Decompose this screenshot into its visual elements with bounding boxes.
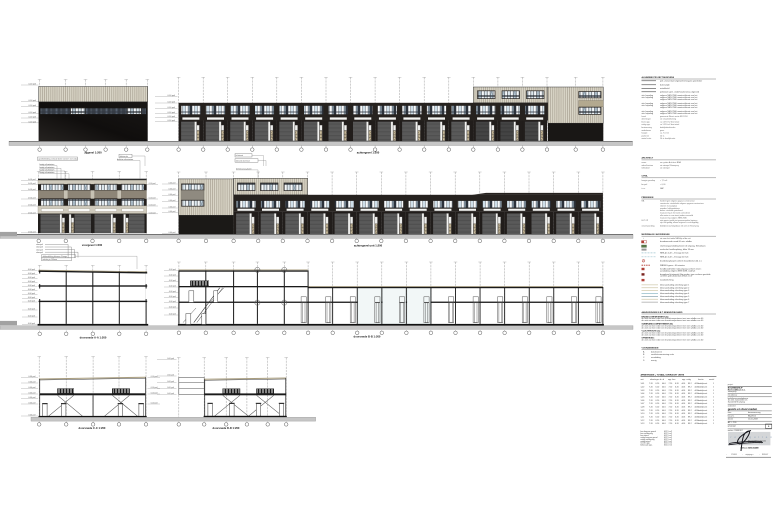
svg-text:0.00 peil: 0.00 peil: [167, 116, 175, 118]
svg-text:0.00 peil: 0.00 peil: [28, 105, 36, 107]
svg-text:0.00 peil: 0.00 peil: [169, 269, 176, 271]
svg-text:kleuraanduiding afwerking type: kleuraanduiding afwerking type 2: [660, 286, 690, 289]
svg-text:0.00 peil: 0.00 peil: [28, 293, 36, 295]
svg-text:Savelveld Stramproy: Savelveld Stramproy: [728, 401, 745, 404]
svg-text:0-PEIL: 0-PEIL: [642, 176, 649, 178]
svg-text:7.20: 7.20: [649, 407, 653, 409]
svg-text:0.00 peil: 0.00 peil: [169, 286, 176, 288]
svg-text:0.00 peil: 0.00 peil: [169, 291, 176, 293]
svg-text:bn-peil: bn-peil: [642, 184, 648, 186]
svg-text:0.00 peil: 0.00 peil: [149, 198, 156, 200]
svg-text:Stramproy: Stramproy: [728, 390, 737, 393]
svg-text:afmetingen b x d: afmetingen b x d: [650, 378, 664, 381]
svg-text:6.20: 6.20: [656, 407, 660, 409]
svg-text:vloerpeil: vloerpeil: [36, 251, 44, 254]
svg-text:aantal units: aantal units: [642, 137, 652, 140]
svg-text:0.00 peil: 0.00 peil: [169, 314, 176, 316]
svg-text:44.6: 44.6: [682, 420, 686, 422]
svg-text:WBDBO-grens - 60 minuten: WBDBO-grens - 60 minuten: [660, 264, 685, 267]
svg-text:612,5 m2: 612,5 m2: [664, 445, 672, 447]
svg-text:44.6: 44.6: [682, 390, 686, 392]
svg-text:44.6: 44.6: [682, 400, 686, 402]
svg-text:7.20: 7.20: [649, 397, 653, 399]
svg-text:0.00 peil: 0.00 peil: [167, 387, 174, 389]
svg-text:6.20: 6.20: [675, 387, 679, 389]
svg-text:44.6: 44.6: [682, 383, 686, 385]
svg-text:kozijn aluminium: kozijn aluminium: [40, 172, 55, 174]
svg-text:89.2: 89.2: [688, 400, 692, 402]
svg-text:0.00 peil: 0.00 peil: [28, 403, 36, 405]
svg-text:6.20: 6.20: [656, 400, 660, 402]
svg-text:gemeente Weert sectie NR 1234: gemeente Weert sectie NR 1234: [660, 115, 687, 118]
svg-text:89.2: 89.2: [688, 413, 692, 415]
svg-text:6.20: 6.20: [656, 397, 660, 399]
svg-text:6.20: 6.20: [675, 393, 679, 395]
svg-text:170108: 170108: [731, 454, 737, 456]
svg-text:bedrijfsunit: bedrijfsunit: [698, 402, 708, 405]
svg-text:ca. 7,5 m1: ca. 7,5 m1: [660, 133, 669, 135]
svg-text:7.20: 7.20: [669, 397, 673, 399]
svg-text:44.6: 44.6: [662, 407, 666, 409]
svg-text:14 st.: 14 st.: [660, 134, 665, 137]
svg-text:0.00 peil: 0.00 peil: [28, 179, 36, 181]
svg-text:0.00 peil: 0.00 peil: [167, 375, 174, 377]
svg-text:0.00 peil: 0.00 peil: [28, 100, 36, 102]
svg-text:opp. nuttig: opp. nuttig: [682, 378, 691, 381]
svg-text:0.00 peil: 0.00 peil: [28, 323, 36, 325]
svg-text:uitv. bepaling: uitv. bepaling: [642, 112, 654, 115]
svg-text:bedrijfsdoeleinden: bedrijfsdoeleinden: [660, 126, 675, 129]
svg-text:0.00 peil: 0.00 peil: [28, 212, 36, 214]
svg-text:onderbouw: onderbouw: [642, 129, 652, 132]
svg-text:89.2: 89.2: [688, 407, 692, 409]
svg-text:1: 1: [713, 390, 714, 392]
svg-text:44.6: 44.6: [682, 423, 686, 425]
svg-text:6.20: 6.20: [675, 407, 679, 409]
svg-text:0.00 peil: 0.00 peil: [167, 393, 174, 395]
svg-text:44.6: 44.6: [662, 383, 666, 385]
svg-text:ALGEMENE PROJECTGEGEVENS: ALGEMENE PROJECTGEGEVENS: [642, 76, 675, 79]
svg-text:89.2: 89.2: [688, 393, 692, 395]
svg-text:0.00 peil: 0.00 peil: [28, 309, 36, 311]
svg-text:0.00 peil: 0.00 peil: [28, 285, 36, 287]
svg-text:44.6: 44.6: [682, 393, 686, 395]
svg-text:bedrijfsunit: bedrijfsunit: [698, 399, 708, 402]
svg-text:AANDUIDINGEN M.B.T. BRANDVEILI: AANDUIDINGEN M.B.T. BRANDVEILIGHEID: [642, 311, 684, 314]
svg-text:44.6: 44.6: [682, 397, 686, 399]
svg-text:de units vormen ieder een bran: de units vormen ieder een brandcompartim…: [642, 326, 705, 329]
svg-text:0.00 peil: 0.00 peil: [28, 121, 36, 123]
svg-text:0.00 peil: 0.00 peil: [151, 393, 158, 395]
svg-text:ca 1.310 m2 bvo totaal: ca 1.310 m2 bvo totaal: [660, 123, 680, 126]
svg-text:AFMETINGEN + TOTAAL OVERZICHT: AFMETINGEN + TOTAAL OVERZICHT UNITS: [641, 373, 685, 376]
svg-text:zie stempel: zie stempel: [660, 167, 670, 170]
svg-text:0.00 peil: 0.00 peil: [28, 269, 36, 271]
svg-text:7.20: 7.20: [669, 403, 673, 405]
svg-text:bedrijfsunit: bedrijfsunit: [698, 382, 708, 385]
svg-text:unit: unit: [641, 378, 645, 381]
svg-text:hoogte: hoogte: [642, 132, 648, 135]
svg-text:1: 1: [713, 417, 714, 419]
svg-text:0.00 peil: 0.00 peil: [28, 316, 36, 318]
svg-text:0.00 peil: 0.00 peil: [28, 382, 36, 384]
svg-text:kleuraanduiding afwerking type: kleuraanduiding afwerking type 7: [660, 301, 690, 304]
svg-text:0.00 peil: 0.00 peil: [28, 397, 36, 399]
svg-text:brandwerende wand 60 min. wbdb: brandwerende wand 60 min. wbdbo: [660, 241, 693, 243]
svg-text:ron gutten Architect BNA: ron gutten Architect BNA: [660, 161, 681, 164]
svg-text:fase: fase: [728, 412, 732, 414]
svg-text:44.6: 44.6: [682, 410, 686, 412]
svg-text:+ 0,00: + 0,00: [660, 184, 665, 186]
svg-text:7.20: 7.20: [669, 417, 673, 419]
svg-text:1: 1: [713, 403, 714, 405]
svg-text:89.2: 89.2: [688, 417, 692, 419]
svg-text:nuttig opp.: nuttig opp.: [642, 123, 651, 126]
svg-text:0.00 peil: 0.00 peil: [169, 211, 176, 213]
svg-text:vloerpeil: vloerpeil: [36, 243, 44, 246]
svg-text:6.20: 6.20: [675, 400, 679, 402]
svg-text:6.20: 6.20: [675, 390, 679, 392]
svg-text:7.20: 7.20: [649, 423, 653, 425]
svg-text:aantal: aantal: [709, 378, 715, 381]
svg-text:nieuwbouw: nieuwbouw: [728, 394, 738, 396]
svg-text:1: 1: [713, 393, 714, 395]
svg-text:0.00 peil: 0.00 peil: [28, 117, 36, 119]
svg-text:doorsnede D-D 1:200: doorsnede D-D 1:200: [213, 426, 240, 430]
svg-text:VOORZIENINGEN: VOORZIENINGEN: [642, 348, 659, 350]
svg-text:0.00 peil: 0.00 peil: [149, 183, 156, 185]
svg-text:0.00 peil: 0.00 peil: [28, 289, 36, 291]
svg-text:project: project: [728, 383, 734, 386]
svg-text:dakafvoeren: dakafvoeren: [651, 351, 662, 353]
svg-text:1-07: 1-07: [641, 403, 645, 405]
svg-text:1-12: 1-12: [641, 420, 645, 422]
svg-text:7.20: 7.20: [649, 410, 653, 412]
svg-text:44.6: 44.6: [662, 420, 666, 422]
svg-text:0.00 peil: 0.00 peil: [169, 189, 176, 191]
svg-text:bedrijfsunit: bedrijfsunit: [698, 406, 708, 409]
svg-text:overig: overig: [651, 360, 656, 362]
svg-text:44.6: 44.6: [662, 417, 666, 419]
svg-text:wijziging a: wijziging a: [746, 454, 754, 456]
svg-text:0.00 peil: 0.00 peil: [28, 231, 36, 233]
svg-text:7.20: 7.20: [649, 417, 653, 419]
svg-text:t.o.v.: t.o.v.: [642, 187, 646, 190]
svg-text:vloerpeil: vloerpeil: [36, 246, 44, 249]
svg-text:6.20: 6.20: [675, 403, 679, 405]
svg-text:voorgevel 1:200: voorgevel 1:200: [82, 243, 103, 247]
svg-text:zie voor het totale NEN-lijn o: zie voor het totale NEN-lijn of de unit: [660, 237, 691, 240]
svg-text:7.20: 7.20: [649, 387, 653, 389]
svg-text:bestemming: bestemming: [642, 126, 652, 129]
svg-text:1: 1: [713, 423, 714, 425]
svg-text:ca 1.470 m2 bvo totaal: ca 1.470 m2 bvo totaal: [660, 120, 680, 123]
svg-text:6.20: 6.20: [675, 410, 679, 412]
svg-text:ARCHITECT: ARCHITECT: [642, 157, 654, 160]
svg-text:6.20: 6.20: [656, 387, 660, 389]
svg-text:0.00 peil: 0.00 peil: [169, 296, 176, 298]
svg-text:de units vormen ieder een bran: de units vormen ieder een brandcompartim…: [642, 333, 705, 336]
svg-text:0.00 peil: 0.00 peil: [28, 281, 36, 283]
svg-text:werknr. 20080167: werknr. 20080167: [728, 429, 743, 432]
svg-text:7.20: 7.20: [669, 400, 673, 402]
svg-text:zijn niet geldig; alleen origi: zijn niet geldig; alleen origineel is re…: [660, 221, 698, 224]
svg-text:doorsnede B-B 1:200: doorsnede B-B 1:200: [354, 334, 381, 338]
svg-text:0.00 peil: 0.00 peil: [28, 415, 36, 417]
svg-text:44.6: 44.6: [682, 417, 686, 419]
svg-text:7.20: 7.20: [669, 410, 673, 412]
svg-text:7.20: 7.20: [669, 383, 673, 385]
svg-text:0.00 peil: 0.00 peil: [169, 200, 176, 202]
svg-text:6.20: 6.20: [675, 423, 679, 425]
svg-text:bedrijfsunit: bedrijfsunit: [698, 396, 708, 399]
svg-text:44.6: 44.6: [662, 393, 666, 395]
svg-text:10 st. bedrijfsunits: 10 st. bedrijfsunits: [660, 137, 675, 140]
svg-text:0.00 peil: 0.00 peil: [169, 275, 176, 277]
svg-text:44.6: 44.6: [662, 413, 666, 415]
svg-text:0.00 peil: 0.00 peil: [169, 280, 176, 282]
svg-text:volgens NEN 2580 meetcertifica: volgens NEN 2580 meetcertificaat van het: [660, 98, 698, 101]
svg-text:6.20: 6.20: [675, 397, 679, 399]
svg-text:volgens NEN 2580 meetcertifica: volgens NEN 2580 meetcertificaat van het: [660, 112, 698, 115]
svg-text:kleuraanduiding afwerking type: kleuraanduiding afwerking type 4: [660, 292, 690, 295]
svg-text:geen: geen: [660, 130, 664, 132]
svg-text:bouwaanvraag: bouwaanvraag: [748, 411, 760, 414]
svg-text:uitv. bepaling: uitv. bepaling: [642, 104, 654, 107]
svg-text:0.00 peil: 0.00 peil: [151, 376, 158, 378]
svg-text:7.20: 7.20: [649, 393, 653, 395]
svg-text:6.20: 6.20: [656, 383, 660, 385]
svg-text:volgens NEN 2580 meetcertifica: volgens NEN 2580 meetcertificaat van het: [660, 106, 698, 109]
svg-text:6.20: 6.20: [656, 423, 660, 425]
svg-text:bouwnr.: bouwnr.: [728, 414, 735, 417]
svg-text:de units vormen ieder een bran: de units vormen ieder een brandcompartim…: [642, 338, 705, 341]
svg-text:peildatum gem. onderhoudsnivea: peildatum gem. onderhoudsniveau afgerond: [660, 91, 699, 94]
svg-text:1-08: 1-08: [641, 407, 645, 409]
svg-text:noodverlichting: noodverlichting: [660, 279, 673, 282]
svg-text:44.6: 44.6: [662, 403, 666, 405]
svg-text:bedrijfsunit: bedrijfsunit: [698, 419, 708, 422]
svg-text:0.00 peil: 0.00 peil: [169, 194, 176, 196]
svg-text:1: 1: [713, 397, 714, 399]
svg-text:0.00 peil: 0.00 peil: [151, 387, 158, 389]
svg-text:7.20: 7.20: [669, 393, 673, 395]
svg-text:6.20: 6.20: [656, 413, 660, 415]
svg-text:opp. bvo: opp. bvo: [668, 379, 675, 381]
svg-text:NEN-lijn 2,4m - 3m (opp 20 m2): NEN-lijn 2,4m - 3m (opp 20 m2): [660, 253, 689, 255]
svg-text:functie: functie: [698, 378, 704, 381]
svg-text:44.6: 44.6: [662, 410, 666, 412]
svg-text:kleuraanduiding afwerking type: kleuraanduiding afwerking type 6: [660, 298, 690, 301]
svg-text:0.00 peil: 0.00 peil: [167, 358, 174, 360]
svg-text:zijgevel 1:200: zijgevel 1:200: [84, 150, 102, 154]
svg-text:kozijn aluminium: kozijn aluminium: [40, 167, 55, 169]
svg-text:zie situatietekening: zie situatietekening: [660, 118, 676, 121]
svg-text:bedrijfsunit: bedrijfsunit: [698, 416, 708, 419]
svg-text:7.20: 7.20: [669, 407, 673, 409]
svg-text:0.00 peil: 0.00 peil: [169, 207, 176, 209]
svg-text:gewijzigd: gewijzigd: [728, 426, 736, 428]
svg-text:kleuraanduiding afwerking type: kleuraanduiding afwerking type 1: [660, 283, 690, 286]
svg-text:PREMISSEN: PREMISSEN: [642, 197, 654, 199]
svg-text:44.6: 44.6: [682, 403, 686, 405]
svg-text:0.00 peil: 0.00 peil: [151, 403, 158, 405]
svg-text:89.2: 89.2: [688, 397, 692, 399]
svg-text:0.00 peil: 0.00 peil: [167, 112, 175, 114]
svg-text:7.20: 7.20: [669, 387, 673, 389]
svg-text:tel/mobiel: tel/mobiel: [642, 167, 651, 170]
svg-text:peil = bovenkant afgewerkte be: peil = bovenkant afgewerkte begane grond…: [660, 80, 703, 83]
svg-text:0.00 peil: 0.00 peil: [169, 232, 176, 234]
svg-text:achtergevel 1:200: achtergevel 1:200: [357, 150, 380, 154]
svg-text:7.20: 7.20: [649, 400, 653, 402]
svg-text:44.6: 44.6: [662, 423, 666, 425]
svg-text:hoogte geveltop: hoogte geveltop: [642, 179, 655, 182]
svg-text:NB.: NB.: [642, 200, 646, 202]
svg-text:zie stempel Stramproy: zie stempel Stramproy: [660, 164, 679, 167]
svg-text:1: 1: [713, 407, 714, 409]
svg-text:6.20: 6.20: [675, 417, 679, 419]
svg-text:doorsnede A-A 1:200: doorsnede A-A 1:200: [80, 336, 107, 340]
svg-text:1: 1: [713, 420, 714, 422]
svg-text:bruto opp.: bruto opp.: [642, 120, 651, 123]
svg-text:44.6: 44.6: [662, 387, 666, 389]
svg-text:6.20: 6.20: [656, 390, 660, 392]
svg-text:kozijn aluminium: kozijn aluminium: [40, 164, 55, 166]
svg-text:gevels en doorsneden: gevels en doorsneden: [728, 407, 758, 411]
svg-text:89.2: 89.2: [688, 390, 692, 392]
svg-text:7.20: 7.20: [669, 420, 673, 422]
svg-text:0.00 peil: 0.00 peil: [28, 183, 36, 185]
svg-text:6.20: 6.20: [675, 420, 679, 422]
svg-text:1-01: 1-01: [641, 383, 645, 385]
svg-text:89.2: 89.2: [688, 420, 692, 422]
svg-text:+ 7,5 m1: + 7,5 m1: [660, 180, 667, 182]
svg-text:7.20: 7.20: [649, 390, 653, 392]
svg-text:89.2: 89.2: [688, 387, 692, 389]
svg-text:0.00 peil: 0.00 peil: [28, 112, 36, 114]
svg-text:verantwoording: verantwoording: [642, 224, 655, 227]
svg-text:g u t t e n: g u t t e n: [750, 435, 773, 439]
svg-text:achtergevel unit 1:200: achtergevel unit 1:200: [354, 244, 383, 248]
svg-text:6.20: 6.20: [675, 383, 679, 385]
svg-text:0.00 peil: 0.00 peil: [149, 205, 156, 207]
svg-text:rookschot hout/beplating, dikt: rookschot hout/beplating, dikte 18 mm: [660, 248, 694, 251]
svg-text:isolatie pir 100mm: isolatie pir 100mm: [43, 258, 58, 261]
svg-text:6.20: 6.20: [656, 410, 660, 412]
svg-text:1-06: 1-06: [641, 400, 645, 402]
svg-text:0.00 peil: 0.00 peil: [28, 297, 36, 299]
svg-text:aanduiding volgens NEN 6088, r: aanduiding volgens NEN 6088, rood/wit: [660, 269, 696, 272]
svg-text:6.20: 6.20: [656, 420, 660, 422]
svg-text:6.20: 6.20: [656, 393, 660, 395]
svg-text:uitv. bepaling: uitv. bepaling: [642, 96, 654, 99]
svg-text:0.00 peil: 0.00 peil: [169, 183, 176, 185]
svg-text:A3 1 : 200: A3 1 : 200: [728, 421, 737, 424]
svg-text:6.20: 6.20: [656, 403, 660, 405]
svg-text:0.00 peil: 0.00 peil: [28, 393, 36, 395]
svg-text:dakbedekking bitumen 2-laags: dakbedekking bitumen 2-laags: [43, 255, 67, 258]
svg-text:0.00 peil: 0.00 peil: [28, 205, 36, 207]
svg-text:bebouwd opp.: bebouwd opp.: [641, 445, 653, 447]
svg-text:MATERIALEN / ARCERINGEN: MATERIALEN / ARCERINGEN: [642, 233, 671, 236]
svg-text:89.2: 89.2: [688, 410, 692, 412]
svg-text:naam: naam: [642, 162, 647, 164]
svg-text:bedrijfsunit: bedrijfsunit: [698, 409, 708, 412]
svg-text:44.6: 44.6: [682, 387, 686, 389]
svg-text:1-09: 1-09: [641, 410, 645, 412]
svg-text:1: 1: [713, 383, 714, 385]
svg-text:0.00 peil: 0.00 peil: [167, 95, 175, 97]
svg-text:lichtstraat: lichtstraat: [236, 154, 244, 157]
svg-text:89.2: 89.2: [688, 403, 692, 405]
svg-text:0.00 peil: 0.00 peil: [28, 376, 36, 378]
svg-text:1: 1: [713, 413, 714, 415]
svg-text:bedrijfsunit: bedrijfsunit: [698, 422, 708, 425]
svg-text:0.00 peil: 0.00 peil: [28, 198, 36, 200]
svg-text:0.00 peil: 0.00 peil: [28, 387, 36, 389]
svg-text:7.20: 7.20: [649, 383, 653, 385]
svg-text:bedrijfsunit: bedrijfsunit: [698, 386, 708, 389]
svg-text:bedrijfsunit: bedrijfsunit: [698, 412, 708, 415]
svg-text:afmetingen: afmetingen: [642, 118, 651, 121]
svg-text:kavel: kavel: [642, 116, 647, 118]
svg-text:1-02: 1-02: [641, 387, 645, 389]
svg-text:7.20: 7.20: [649, 413, 653, 415]
svg-text:1-10: 1-10: [641, 413, 645, 415]
svg-text:0.00 peil: 0.00 peil: [149, 212, 156, 214]
svg-text:1-13: 1-13: [641, 423, 645, 425]
svg-text:vluchtwegaanduiding boven de u: vluchtwegaanduiding boven de uitgang, St…: [660, 245, 706, 248]
svg-text:0.00 peil: 0.00 peil: [28, 277, 36, 279]
svg-text:1-11: 1-11: [641, 417, 645, 419]
svg-text:0.00 peil: 0.00 peil: [28, 273, 36, 275]
svg-text:1-04: 1-04: [641, 393, 645, 395]
svg-text:parkeren: parkeren: [642, 134, 649, 137]
svg-text:1: 1: [713, 410, 714, 412]
svg-text:BA-08.02: BA-08.02: [748, 414, 756, 417]
svg-text:0.00 peil: 0.00 peil: [169, 301, 176, 303]
svg-text:RW-007: RW-007: [762, 454, 768, 456]
svg-text:telefoon 0495-564488: telefoon 0495-564488: [740, 446, 758, 449]
svg-text:44.6: 44.6: [662, 390, 666, 392]
svg-text:conform gebruiksbesluit artike: conform gebruiksbesluit artikel 2.4.1: [660, 275, 693, 278]
svg-text:1-05: 1-05: [641, 397, 645, 399]
svg-text:kozijn aluminium: kozijn aluminium: [40, 170, 55, 172]
svg-text:1: 1: [713, 400, 714, 402]
svg-text:0.00 peil: 0.00 peil: [167, 381, 174, 383]
svg-text:adres/kantoor: adres/kantoor: [642, 164, 654, 167]
svg-text:ventilatievoorziening units: ventilatievoorziening units: [651, 353, 674, 356]
svg-text:44.6: 44.6: [662, 400, 666, 402]
svg-text:1: 1: [713, 387, 714, 389]
svg-text:daktrim alu: daktrim alu: [120, 155, 128, 158]
svg-text:0.00 peil: 0.00 peil: [28, 301, 36, 303]
svg-text:LET OP: LET OP: [642, 220, 649, 222]
svg-text:buitenzijde: buitenzijde: [660, 84, 670, 87]
svg-text:0.00 peil: 0.00 peil: [169, 307, 176, 309]
svg-text:44.6: 44.6: [662, 397, 666, 399]
svg-text:gevelbekleding verticale delen: gevelbekleding verticale delen western r…: [39, 157, 78, 160]
svg-text:1-03: 1-03: [641, 390, 645, 392]
svg-text:89.2: 89.2: [688, 423, 692, 425]
svg-text:bedrijfsverzamelgebouw 10 unit: bedrijfsverzamelgebouw 10 units te Stram…: [660, 224, 699, 227]
svg-text:aanduiding: aanduiding: [651, 357, 661, 359]
svg-text:0.00 peil: 0.00 peil: [167, 120, 175, 122]
svg-text:de units vormen ieder een bran: de units vormen ieder een brandcompartim…: [642, 319, 705, 322]
svg-text:0.00 peil: 0.00 peil: [167, 107, 175, 109]
svg-text:7.20: 7.20: [649, 420, 653, 422]
